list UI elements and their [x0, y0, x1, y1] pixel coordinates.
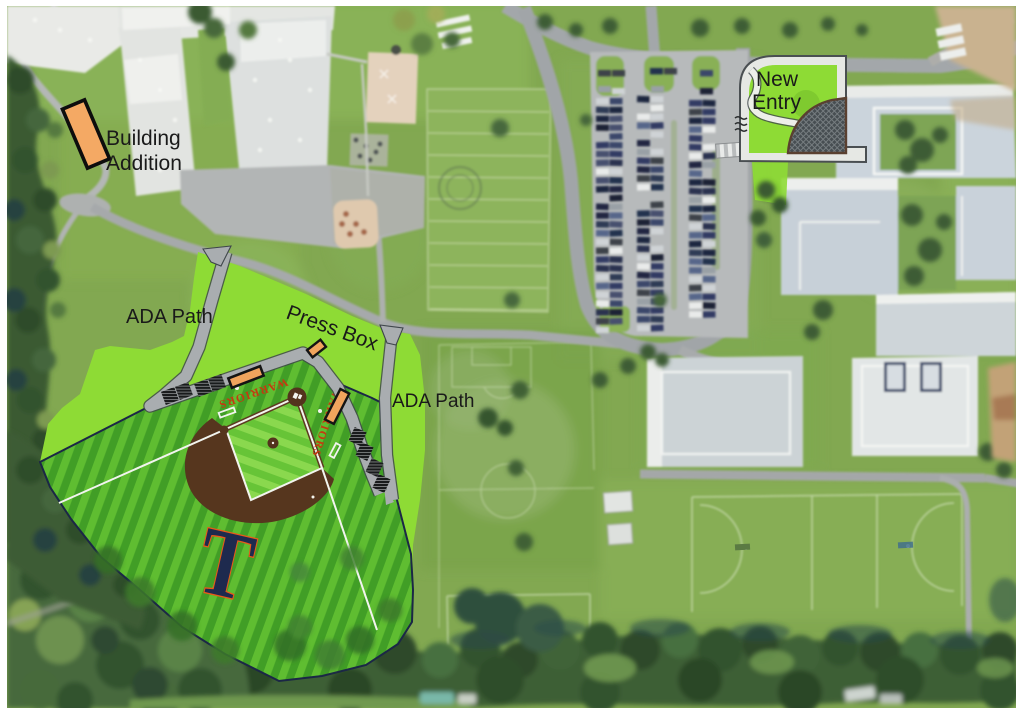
svg-text:Addition: Addition: [106, 152, 182, 175]
svg-text:Building: Building: [106, 127, 181, 150]
svg-text:Entry: Entry: [752, 91, 802, 114]
svg-text:ADA Path: ADA Path: [392, 391, 474, 412]
svg-text:New: New: [756, 68, 799, 91]
svg-text:ADA Path: ADA Path: [126, 306, 213, 328]
